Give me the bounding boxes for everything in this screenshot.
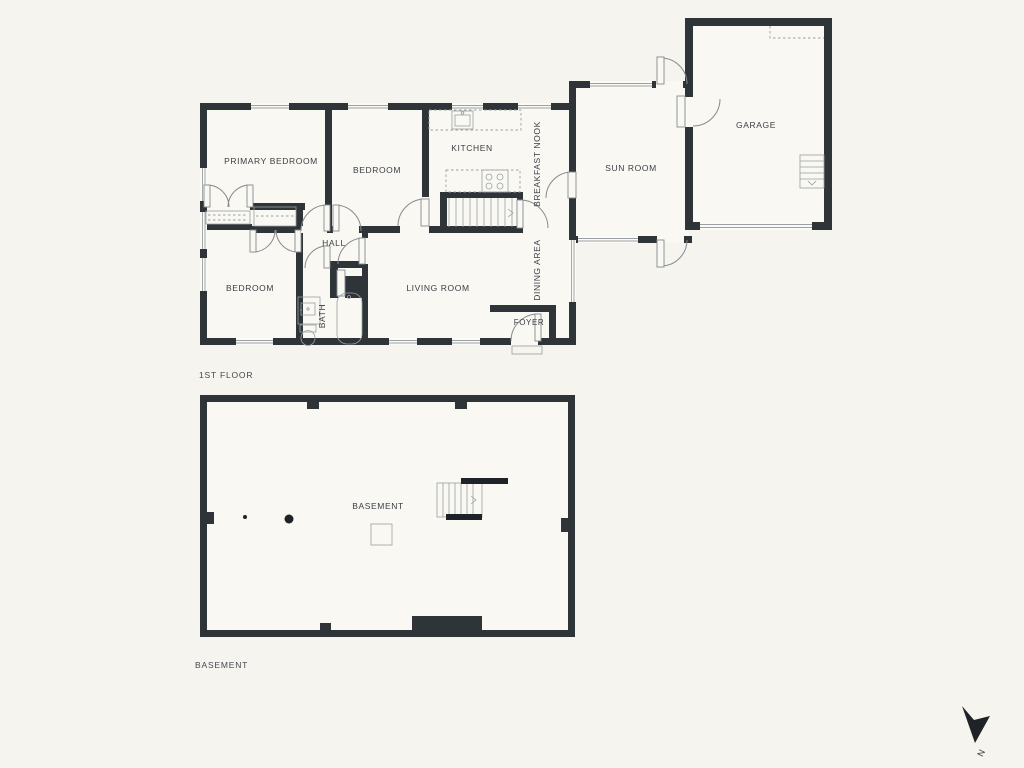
wall-pilaster [320,623,331,630]
door-leaf [677,96,685,127]
floor-title-first: 1ST FLOOR [199,370,253,380]
window [236,338,273,345]
wall-segment [640,236,658,243]
wall-segment [824,18,832,230]
wall-pilaster [207,512,214,524]
door-opening [400,226,429,233]
door-leaf [204,185,210,207]
first-floor-plan: PRIMARY BEDROOM BEDROOM KITCHEN BREAKFAS… [199,18,832,380]
door-leaf [324,205,330,231]
door-opening [511,338,538,345]
support-column [285,515,294,524]
wall-segment [200,630,575,637]
wall-segment [200,395,207,637]
wall-segment [422,110,429,197]
wall-segment [549,305,556,345]
window [569,240,576,302]
floor-title-basement: BASEMENT [195,660,248,670]
north-arrow-icon: N [962,706,990,758]
room-label-basement: BASEMENT [352,501,404,511]
wall-segment [490,305,556,312]
sunroom-interior [573,84,689,240]
door-leaf [333,205,339,231]
door-leaf [250,230,256,252]
compass-needle [962,706,990,743]
window [578,236,638,243]
wall-pilaster [455,402,467,409]
room-label-bath: BATH [317,304,327,328]
basement-plan: BASEMENT BASEMENT [195,395,575,670]
room-label-hall: HALL [322,238,346,248]
door-swing [661,240,687,266]
room-label-living-room: LIVING ROOM [406,283,469,293]
window [200,258,207,291]
door-opening [301,226,327,233]
compass-north-label: N [975,747,987,758]
wall-segment [200,395,575,402]
wall-segment [685,18,832,26]
door-leaf [568,172,576,198]
window [389,338,417,345]
room-label-bedroom-top: BEDROOM [353,165,401,175]
wall-segment [327,261,363,268]
window [590,81,652,88]
window [348,103,388,110]
wall-pilaster [307,402,319,409]
door-leaf [337,270,345,296]
wall-segment [440,192,447,233]
stair-wall [446,514,482,520]
door-leaf [247,185,253,207]
wall-pilaster [561,518,568,532]
floor-plan-canvas: PRIMARY BEDROOM BEDROOM KITCHEN BREAKFAS… [0,0,1024,768]
wall-segment [569,81,576,345]
door-leaf [324,246,330,268]
stair-wall [461,478,508,484]
room-label-sun-room: SUN ROOM [605,163,657,173]
wall-segment [345,276,363,298]
window [452,338,480,345]
room-label-bedroom-bottom: BEDROOM [226,283,274,293]
room-label-garage: GARAGE [736,120,776,130]
door-swing [661,58,687,84]
door-leaf [657,57,664,84]
room-label-foyer: FOYER [514,318,545,327]
wall-segment [568,395,575,637]
chimney-base [412,616,482,630]
door-opening [685,97,693,127]
door-leaf [359,238,365,264]
garage-door [700,222,812,230]
room-label-dining-area: DINING AREA [532,239,542,300]
door-leaf [517,200,523,228]
room-label-kitchen: KITCHEN [451,143,493,153]
room-label-breakfast-nook: BREAKFAST NOOK [532,121,542,207]
window [518,103,551,110]
door-leaf [295,230,301,252]
window [251,103,289,110]
wall-segment [200,224,252,230]
wall-segment [440,192,523,198]
entry-step [512,346,542,354]
window [452,103,483,110]
basement-interior [203,398,572,634]
wall-segment [252,226,523,233]
support-column [243,515,247,519]
door-leaf [421,199,429,226]
door-leaf [657,240,664,267]
room-label-primary-bedroom: PRIMARY BEDROOM [224,156,318,166]
